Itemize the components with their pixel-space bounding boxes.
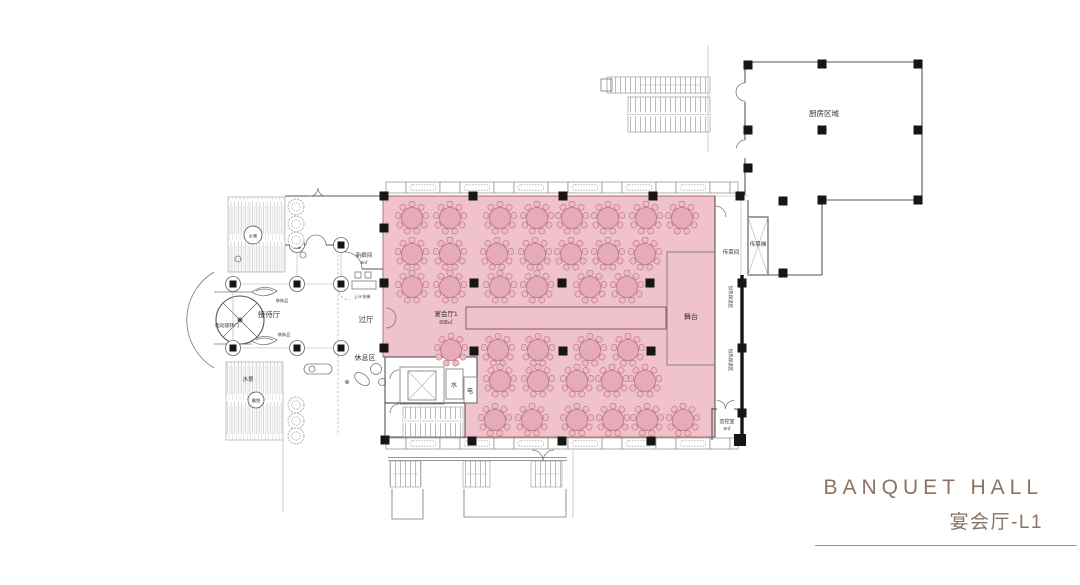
plant — [288, 397, 304, 413]
banquet-hall-area — [383, 196, 715, 437]
plant — [288, 232, 304, 248]
plant — [288, 199, 304, 215]
page-title-en: BANQUET HALL — [824, 476, 1044, 500]
facade-window-band — [386, 182, 738, 193]
pass-room-label: 传菜间 — [723, 248, 740, 256]
reception-wing — [187, 188, 386, 512]
decorative-column — [226, 277, 241, 292]
decorative-column — [334, 238, 349, 253]
structural-column — [736, 192, 745, 201]
title-underline — [815, 545, 1077, 546]
structural-column — [779, 269, 788, 278]
sculpture-label: 雕塑 — [252, 397, 260, 404]
structural-column — [818, 60, 827, 69]
electric-room-label: 电 — [467, 387, 473, 395]
structural-column — [647, 437, 656, 446]
reception-label: 接待厅 — [258, 309, 281, 319]
structural-column — [744, 61, 753, 70]
decorative-column — [290, 277, 305, 292]
structural-column — [469, 192, 478, 201]
lounge-furniture — [304, 364, 386, 389]
structural-column — [380, 224, 389, 233]
structural-column — [381, 436, 390, 445]
structural-column — [470, 279, 479, 288]
hall-area-label: 608㎡ — [439, 319, 452, 326]
reception-desk — [352, 272, 376, 289]
banquet-table — [434, 333, 468, 366]
rest-area-label: 休息区 — [355, 353, 376, 362]
structural-column — [380, 344, 389, 353]
decorative-column — [334, 341, 349, 356]
structural-column — [468, 437, 477, 446]
pass-lift-label: 传菜梯 — [750, 240, 767, 248]
sound-room-area-label: 8㎡ — [723, 425, 731, 431]
elevator-stair-block — [385, 357, 477, 437]
structural-column — [738, 279, 747, 288]
water-bottom-label: 水景 — [242, 375, 254, 383]
decorative-column — [226, 341, 241, 356]
title-block: BANQUET HALL 宴会厅-L1 — [824, 476, 1044, 534]
escalator-note-label: 上2F扶梯 — [354, 293, 371, 299]
decoration-label-1: 装饰品 — [276, 297, 289, 304]
structural-column — [559, 347, 568, 356]
bride-room-area-label: 8㎡ — [360, 259, 368, 265]
structural-column — [738, 409, 747, 418]
structural-column — [647, 347, 656, 356]
water-room-label: 水 — [451, 381, 457, 389]
structural-column — [914, 126, 923, 135]
structural-column — [779, 197, 788, 206]
planter — [392, 489, 423, 519]
bride-room-label: 新娘间 — [356, 251, 373, 259]
plant — [288, 216, 304, 232]
exterior-steps — [388, 450, 573, 519]
structural-column — [649, 192, 658, 201]
structural-column — [559, 192, 568, 201]
structural-column — [744, 126, 753, 135]
structural-column — [558, 437, 567, 446]
vestibule-label: 过厅 — [359, 314, 374, 324]
structural-column — [738, 344, 747, 353]
structural-column — [818, 196, 827, 205]
page-title-cn: 宴会厅-L1 — [824, 507, 1044, 534]
floor-plan-page: 厨房区域 宴会厅1 608㎡ 舞台 传菜间 传菜梯 加热保温区 加热保温区 音控… — [0, 0, 1080, 585]
structural-column — [380, 192, 389, 201]
revolving-door-label: 电动旋转门 — [215, 322, 239, 329]
sound-room-label: 音控室 — [719, 418, 734, 425]
structural-column — [734, 434, 746, 446]
warm-zone-label-2: 加热保温区 — [727, 349, 734, 372]
structural-column — [470, 347, 479, 356]
plant — [288, 413, 304, 429]
structural-column — [818, 126, 827, 135]
decorative-column — [334, 277, 349, 292]
warm-zone-label-1: 加热保温区 — [727, 286, 734, 309]
revolving-door — [187, 272, 264, 368]
decorative-column — [290, 341, 305, 356]
structural-column — [744, 164, 753, 173]
runway-stage — [466, 307, 666, 329]
hall-name-label: 宴会厅1 — [434, 309, 458, 318]
structural-column — [646, 279, 655, 288]
stage-label: 舞台 — [684, 312, 698, 321]
structural-column — [914, 60, 923, 69]
structural-column — [558, 279, 567, 288]
kitchen-label: 厨房区域 — [809, 108, 839, 118]
structural-column — [914, 196, 923, 205]
decoration-label-2: 装饰品 — [278, 331, 291, 338]
plant — [288, 428, 304, 444]
water-top-label: 水景 — [249, 233, 257, 240]
planter — [464, 489, 566, 517]
structural-column — [380, 279, 389, 288]
